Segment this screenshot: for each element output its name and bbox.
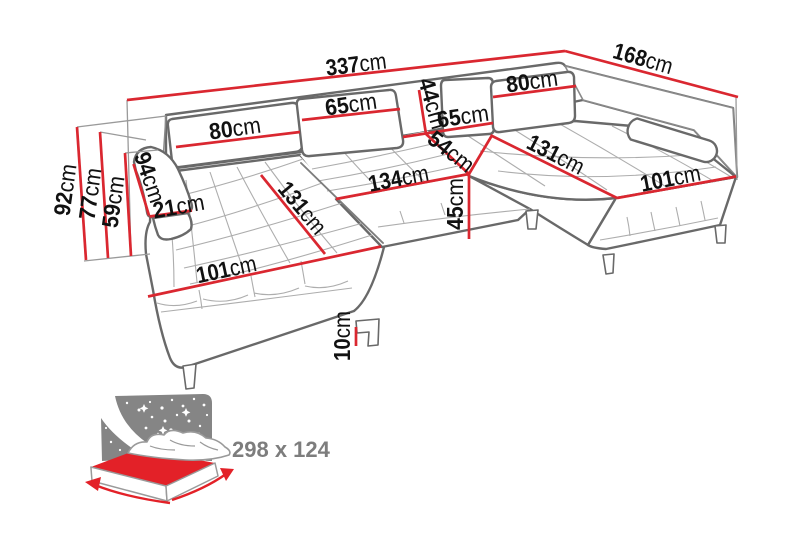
svg-text:10cm: 10cm <box>329 311 355 361</box>
svg-text:337cm: 337cm <box>324 47 388 80</box>
svg-text:298 x 124: 298 x 124 <box>232 437 331 462</box>
svg-text:45cm: 45cm <box>442 178 468 230</box>
